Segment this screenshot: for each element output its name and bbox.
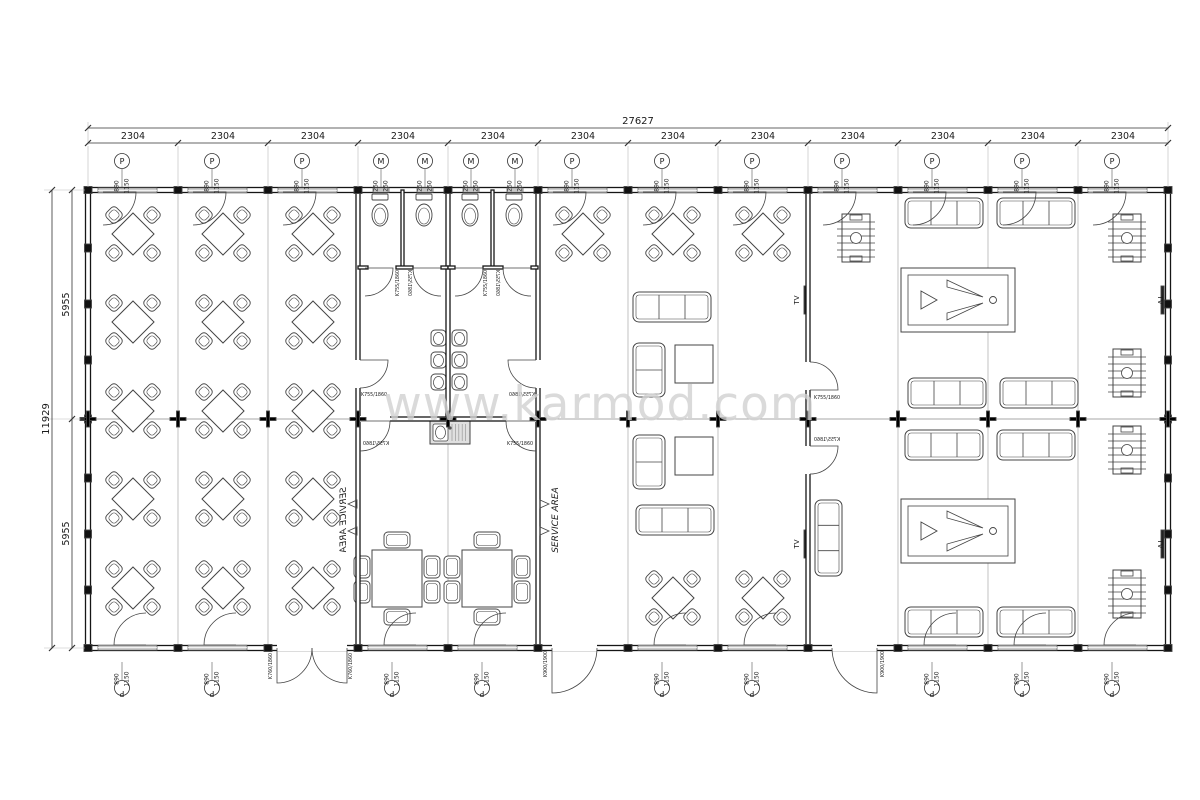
dim-column: 2304 [121, 131, 145, 142]
marker-size: 1150 [844, 178, 851, 193]
chair [104, 243, 124, 263]
chair [322, 293, 342, 313]
dining-table [644, 569, 702, 627]
dim-total-height: 11929 [41, 403, 52, 435]
door-label: K755/1860 [814, 437, 840, 443]
chair [104, 205, 124, 225]
tv-unit: TV [1156, 530, 1164, 558]
wall-opening [552, 644, 597, 651]
sofa-3-seat [997, 198, 1075, 228]
chair [284, 382, 304, 402]
dining-table [194, 470, 252, 528]
chair [194, 293, 214, 313]
door-swing [508, 360, 536, 388]
dining-table [104, 382, 162, 440]
chair [104, 331, 124, 351]
dining-table [284, 382, 342, 440]
dim-total-width: 27627 [622, 116, 654, 127]
marker-size: 250 [507, 180, 514, 192]
dining-table [104, 293, 162, 351]
floor-plan-drawing: TVTVTVTVK760/1860K760/1860K900/1900K900/… [0, 0, 1200, 800]
marker-size: 1150 [394, 671, 401, 686]
marker-symbol: P [750, 157, 755, 166]
dim-column: 2304 [211, 131, 235, 142]
chair [232, 420, 252, 440]
dim-column: 2304 [931, 131, 955, 142]
chair [232, 382, 252, 402]
opening-marker: P8901150 [384, 662, 401, 698]
opening-marker: P8901150 [1104, 662, 1121, 698]
sofa-3-seat [908, 378, 986, 408]
toilet [372, 194, 388, 226]
marker-symbol: P [749, 689, 754, 698]
door-swing [413, 268, 441, 296]
table-top [462, 550, 512, 607]
wall-opening [805, 362, 811, 390]
chair [284, 470, 304, 490]
marker-size: 890 [834, 180, 841, 192]
chair [142, 331, 162, 351]
tv-label: TV [793, 295, 801, 305]
chair [734, 607, 754, 627]
dining-table [194, 382, 252, 440]
opening-marker: P8901150 [114, 662, 131, 698]
dining-table [284, 205, 342, 263]
chair [142, 243, 162, 263]
door-swing [114, 613, 146, 645]
chair [322, 420, 342, 440]
marker-symbol: P [1019, 689, 1024, 698]
opening-marker: P8901150 [474, 662, 491, 698]
door-swing [810, 362, 838, 390]
pool-table [901, 499, 1015, 563]
chair [284, 559, 304, 579]
marker-size: 1150 [934, 178, 941, 193]
wall [441, 266, 448, 269]
chair [322, 243, 342, 263]
dim-column: 2304 [1021, 131, 1045, 142]
chair [734, 243, 754, 263]
marker-symbol: P [210, 157, 215, 166]
door-swing [204, 613, 236, 645]
direction-arrow [540, 500, 549, 508]
marker-size: 1150 [124, 178, 131, 193]
marker-symbol: P [570, 157, 575, 166]
service-table [354, 532, 440, 625]
marker-size: 890 [474, 673, 481, 685]
wall [483, 266, 503, 269]
door-label: K755/1860 [507, 441, 533, 447]
marker-size: 890 [294, 180, 301, 192]
marker-size: 1150 [754, 178, 761, 193]
marker-symbol: P [929, 689, 934, 698]
chair [284, 420, 304, 440]
opening-marker: P8901150 [744, 662, 761, 698]
door-label: K755/1860 [395, 270, 401, 296]
marker-size: 250 [427, 180, 434, 192]
dim-column: 2304 [301, 131, 325, 142]
sofa-3-seat [1000, 378, 1078, 408]
dim-half-height: 5955 [61, 292, 72, 316]
marker-symbol: P [659, 689, 664, 698]
sofa-3-seat [633, 292, 711, 322]
opening-marker: P8901150 [924, 662, 941, 698]
washbasin [431, 330, 446, 346]
marker-symbol: P [840, 157, 845, 166]
foosball-table [1108, 214, 1146, 262]
marker-size: 890 [1014, 180, 1021, 192]
marker-size: 250 [383, 180, 390, 192]
chair [104, 470, 124, 490]
door-label: K755/1860 [408, 270, 414, 296]
chair [592, 243, 612, 263]
chair [284, 331, 304, 351]
chair [232, 205, 252, 225]
marker-size: 1150 [934, 671, 941, 686]
wall-opening [805, 446, 811, 474]
marker-size: 1150 [754, 671, 761, 686]
chair [194, 470, 214, 490]
marker-symbol: M [512, 157, 519, 166]
marker-symbol: P [389, 689, 394, 698]
dining-table [194, 205, 252, 263]
door-label: K900/1900 [880, 651, 886, 677]
marker-symbol: P [1020, 157, 1025, 166]
direction-arrow [540, 527, 549, 535]
chair [284, 293, 304, 313]
dim-column: 2304 [391, 131, 415, 142]
marker-symbol: M [422, 157, 429, 166]
dining-table [284, 470, 342, 528]
marker-symbol: M [468, 157, 475, 166]
chair [772, 607, 792, 627]
chair [194, 420, 214, 440]
dining-table [644, 205, 702, 263]
chair [194, 205, 214, 225]
marker-size: 1150 [304, 178, 311, 193]
marker-size: 890 [1014, 673, 1021, 685]
washbasin [431, 374, 446, 390]
foosball-table [837, 214, 875, 262]
wall [396, 266, 413, 269]
chair [644, 569, 664, 589]
marker-symbol: P [300, 157, 305, 166]
chair [142, 205, 162, 225]
door-swing [277, 648, 312, 683]
chair [142, 559, 162, 579]
foosball-table [1108, 570, 1146, 618]
door-label: K755/1860 [361, 392, 387, 398]
chair [322, 382, 342, 402]
chair [772, 243, 792, 263]
marker-symbol: P [930, 157, 935, 166]
sofa-3-seat [997, 607, 1075, 637]
chair [284, 508, 304, 528]
chair [194, 559, 214, 579]
marker-size: 250 [417, 180, 424, 192]
washbasin [452, 330, 467, 346]
marker-symbol: P [660, 157, 665, 166]
marker-size: 890 [114, 673, 121, 685]
marker-size: 890 [1104, 673, 1111, 685]
chair [644, 243, 664, 263]
marker-size: 250 [517, 180, 524, 192]
door-label: K755/1860 [363, 441, 389, 447]
chair [232, 243, 252, 263]
marker-size: 250 [463, 180, 470, 192]
marker-symbol: P [479, 689, 484, 698]
table-top [372, 550, 422, 607]
door-swing [552, 648, 597, 693]
marker-size: 1150 [124, 671, 131, 686]
wall [491, 190, 494, 268]
service-area-label: SERVICE AREA [551, 487, 561, 553]
chair [232, 470, 252, 490]
dim-column: 2304 [481, 131, 505, 142]
washbasin [452, 352, 467, 368]
opening-marker: P8901150 [204, 662, 221, 698]
wall [448, 266, 455, 269]
marker-size: 890 [384, 673, 391, 685]
door-swing [503, 268, 531, 296]
sofa-3-seat [815, 500, 842, 576]
chair [194, 331, 214, 351]
dining-table [104, 559, 162, 617]
tv-unit: TV [1156, 286, 1164, 314]
door-label: K755/1860 [496, 270, 502, 296]
opening-marker: M250250 [463, 154, 480, 192]
marker-size: 890 [654, 673, 661, 685]
opening-marker: P8901150 [1014, 662, 1031, 698]
chair [232, 559, 252, 579]
service-area-label: SERVICE AREA [339, 487, 349, 553]
room-labels: SERVICE AREASERVICE AREA [339, 487, 561, 553]
wall [401, 190, 404, 268]
tv-unit: TV [793, 530, 807, 558]
marker-size: 1150 [1114, 178, 1121, 193]
coffee-table [675, 437, 713, 475]
dining-table [194, 293, 252, 351]
chair [554, 205, 574, 225]
wall [446, 190, 450, 419]
tv-unit: TV [793, 286, 807, 314]
dining-table [194, 559, 252, 617]
chair [644, 205, 664, 225]
sofa-3-seat [636, 505, 714, 535]
marker-symbol: M [378, 157, 385, 166]
chair [194, 597, 214, 617]
marker-symbol: P [1110, 157, 1115, 166]
sofa-3-seat [905, 607, 983, 637]
door-swing [455, 268, 483, 296]
sofa-3-seat [905, 430, 983, 460]
marker-size: 890 [114, 180, 121, 192]
wall [358, 266, 368, 269]
marker-size: 1150 [1114, 671, 1121, 686]
toilet [462, 194, 478, 226]
tv-label: TV [1156, 294, 1164, 304]
chair [682, 243, 702, 263]
chair [232, 293, 252, 313]
washbasin [431, 352, 446, 368]
chair [194, 382, 214, 402]
chair [232, 597, 252, 617]
coffee-table [675, 345, 713, 383]
dim-column: 2304 [661, 131, 685, 142]
wall-opening [355, 360, 361, 388]
sofa-3-seat [997, 430, 1075, 460]
marker-size: 1150 [214, 178, 221, 193]
chair [284, 205, 304, 225]
marker-size: 890 [924, 180, 931, 192]
marker-size: 890 [744, 673, 751, 685]
dining-table [554, 205, 612, 263]
chair [104, 597, 124, 617]
chair [592, 205, 612, 225]
dining-table [284, 559, 342, 617]
chair [142, 508, 162, 528]
chair [682, 569, 702, 589]
dim-column: 2304 [841, 131, 865, 142]
dim-column: 2304 [751, 131, 775, 142]
chair [772, 205, 792, 225]
marker-size: 1150 [664, 178, 671, 193]
chair [142, 470, 162, 490]
chair [194, 243, 214, 263]
marker-size: 890 [1104, 180, 1111, 192]
door-label: K755/1860 [814, 395, 840, 401]
marker-size: 250 [373, 180, 380, 192]
toilet [506, 194, 522, 226]
dining-table [734, 569, 792, 627]
chair [682, 607, 702, 627]
chair [734, 569, 754, 589]
opening-marker: P8901150 [654, 662, 671, 698]
tv-label: TV [1156, 538, 1164, 548]
marker-symbol: P [119, 689, 124, 698]
chair [554, 243, 574, 263]
marker-size: 1150 [484, 671, 491, 686]
dim-half-height: 5955 [61, 521, 72, 545]
dining-table [104, 470, 162, 528]
chair [322, 597, 342, 617]
opening-marker: M250250 [373, 154, 390, 192]
sofa-2-seat [633, 435, 665, 489]
marker-size: 1150 [664, 671, 671, 686]
chair [322, 331, 342, 351]
door-swing [365, 268, 393, 296]
wall [531, 266, 538, 269]
chair [644, 607, 664, 627]
opening-marker: M250250 [417, 154, 434, 192]
chair [772, 569, 792, 589]
marker-size: 890 [654, 180, 661, 192]
marker-size: 890 [204, 180, 211, 192]
marker-size: 890 [564, 180, 571, 192]
chair [734, 205, 754, 225]
chair [104, 382, 124, 402]
chair [322, 559, 342, 579]
chair [142, 382, 162, 402]
foosball-table [1108, 349, 1146, 397]
marker-symbol: P [120, 157, 125, 166]
chair [142, 293, 162, 313]
dining-table [734, 205, 792, 263]
tv-label: TV [793, 539, 801, 549]
marker-size: 890 [924, 673, 931, 685]
chair [682, 205, 702, 225]
dim-column: 2304 [1111, 131, 1135, 142]
toilet [416, 194, 432, 226]
door-label: K755/1860 [483, 270, 489, 296]
marker-symbol: P [209, 689, 214, 698]
sink-counter [430, 421, 470, 444]
marker-size: 1150 [1024, 671, 1031, 686]
chair [104, 293, 124, 313]
chair [284, 243, 304, 263]
door-swing [360, 360, 388, 388]
dining-table [104, 205, 162, 263]
chair [142, 420, 162, 440]
door-label: K755/1860 [509, 392, 535, 398]
door-swing [810, 446, 838, 474]
chair [284, 597, 304, 617]
chair [232, 508, 252, 528]
wall-opening [535, 360, 541, 388]
dim-column: 2304 [571, 131, 595, 142]
chair [232, 331, 252, 351]
door-swing [832, 648, 877, 693]
service-table [444, 532, 530, 625]
marker-symbol: P [1109, 689, 1114, 698]
furniture: TVTVTVTV [104, 194, 1164, 637]
door-label: K900/1900 [543, 651, 549, 677]
chair [322, 205, 342, 225]
chair [104, 508, 124, 528]
marker-size: 1150 [1024, 178, 1031, 193]
sofa-2-seat [633, 343, 665, 397]
chair [104, 420, 124, 440]
chair [104, 559, 124, 579]
floor-plan-page: TVTVTVTVK760/1860K760/1860K900/1900K900/… [0, 0, 1200, 800]
chair [142, 597, 162, 617]
dining-table [284, 293, 342, 351]
door-label: K760/1860 [268, 653, 274, 679]
wall-opening [832, 644, 877, 651]
foosball-table [1108, 426, 1146, 474]
chair [194, 508, 214, 528]
marker-size: 890 [744, 180, 751, 192]
washbasin [452, 374, 467, 390]
marker-size: 1150 [574, 178, 581, 193]
pool-table [901, 268, 1015, 332]
marker-size: 890 [204, 673, 211, 685]
door-label: K760/1860 [348, 653, 354, 679]
marker-size: 250 [473, 180, 480, 192]
opening-marker: M250250 [507, 154, 524, 192]
door-swing [312, 648, 347, 683]
marker-size: 1150 [214, 671, 221, 686]
